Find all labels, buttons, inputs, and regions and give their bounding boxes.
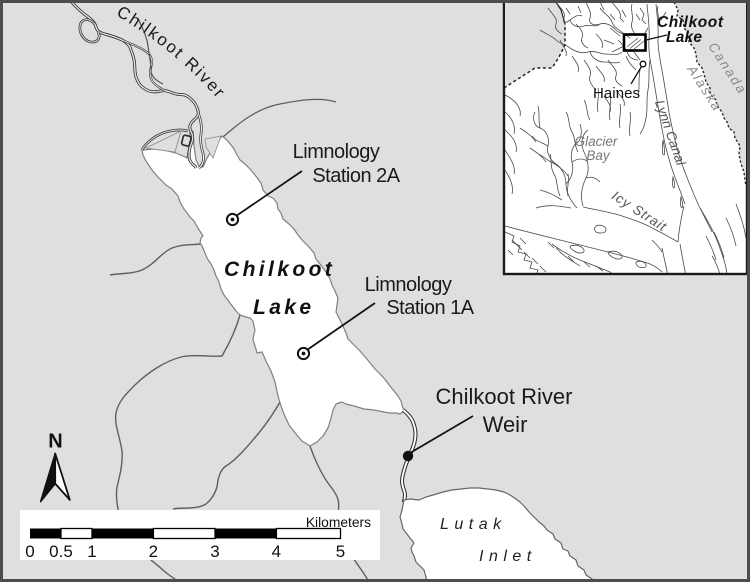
svg-text:Limnology: Limnology bbox=[293, 141, 380, 163]
svg-text:Station 2A: Station 2A bbox=[312, 165, 400, 187]
svg-text:N: N bbox=[48, 431, 62, 453]
svg-text:Haines: Haines bbox=[593, 85, 640, 102]
svg-text:Kilometers: Kilometers bbox=[306, 515, 371, 530]
svg-text:Chilkoot River: Chilkoot River bbox=[436, 384, 573, 409]
svg-text:0: 0 bbox=[25, 542, 34, 561]
svg-text:Inlet: Inlet bbox=[479, 548, 537, 565]
svg-text:3: 3 bbox=[210, 542, 219, 561]
svg-text:Chilkoot: Chilkoot bbox=[224, 258, 335, 281]
svg-text:Lutak: Lutak bbox=[440, 516, 507, 533]
svg-text:Lake: Lake bbox=[253, 296, 314, 319]
svg-text:0.5: 0.5 bbox=[49, 542, 73, 561]
svg-text:Weir: Weir bbox=[483, 412, 528, 437]
svg-text:Limnology: Limnology bbox=[365, 274, 452, 296]
svg-text:5: 5 bbox=[336, 542, 345, 561]
svg-text:2: 2 bbox=[149, 542, 158, 561]
svg-text:Bay: Bay bbox=[586, 148, 611, 163]
svg-text:Glacier: Glacier bbox=[575, 134, 618, 149]
svg-text:4: 4 bbox=[272, 542, 281, 561]
svg-text:Lake: Lake bbox=[666, 29, 702, 46]
svg-text:Station 1A: Station 1A bbox=[386, 297, 474, 319]
svg-text:1: 1 bbox=[87, 542, 96, 561]
